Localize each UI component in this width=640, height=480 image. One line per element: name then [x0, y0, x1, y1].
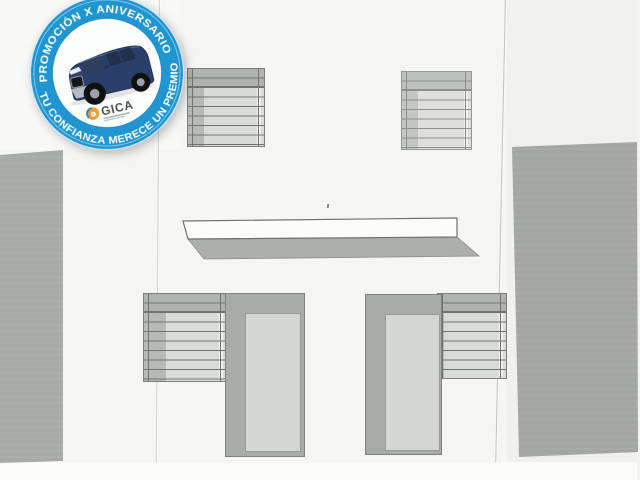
canopy-face: [183, 218, 457, 239]
door-left-panel: [245, 313, 301, 452]
lower-window-right: [437, 293, 507, 379]
paper-fold-right: [495, 0, 506, 480]
shutter-slats: [144, 294, 226, 381]
upper-window-left: [187, 68, 265, 147]
pencil-mark: [327, 204, 330, 208]
car-grille: [70, 76, 84, 89]
upper-window-right: [401, 71, 472, 150]
canopy-underside: [188, 237, 479, 259]
door-left: [225, 293, 305, 457]
shutter-slats: [438, 294, 506, 378]
side-wall-right: [512, 142, 638, 457]
door-right: [365, 294, 442, 455]
scanned-document: GICA PROMOCIÓN X ANIVERSARIO TU CONFIANZ…: [0, 0, 640, 480]
canopy: [170, 195, 490, 270]
shutter-slats: [402, 72, 471, 149]
side-wall-left: [0, 150, 63, 463]
paper-margin-bottom: [0, 462, 640, 480]
shutter-slats: [188, 69, 264, 146]
lower-window-left: [143, 293, 227, 382]
door-right-panel: [385, 314, 440, 451]
